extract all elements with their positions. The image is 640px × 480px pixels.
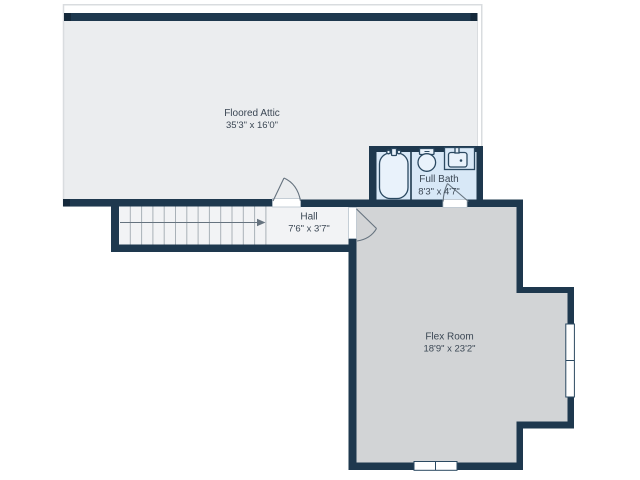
- sink-icon: [445, 148, 475, 170]
- sink-faucet: [455, 148, 459, 154]
- stairwell-left-wall: [111, 199, 119, 252]
- full-bath-label: Full Bath: [419, 174, 458, 185]
- bathtub-icon: [380, 149, 409, 199]
- attic-bottom-wall: [63, 199, 273, 207]
- hall-dims: 7'6" x 3'7": [288, 224, 330, 235]
- bathtub-basin: [380, 153, 409, 199]
- hall-label: Hall: [300, 212, 317, 223]
- floored-attic-dims: 35'3" x 16'0": [226, 120, 278, 131]
- sink-basin: [449, 153, 468, 168]
- flex-room-label: Flex Room: [425, 332, 473, 343]
- floor-plan-canvas: Floored Attic 35'3" x 16'0" Full Bath 8'…: [0, 0, 640, 480]
- floored-attic-label: Floored Attic: [224, 108, 280, 119]
- hall-bottom-wall: [111, 245, 357, 253]
- window-icon: [414, 462, 457, 471]
- toilet-bowl: [418, 154, 436, 172]
- window-icon: [566, 324, 575, 397]
- full-bath-dims: 8'3" x 4'7": [418, 187, 460, 198]
- flex-right-lower-wall: [517, 422, 524, 471]
- toilet-icon: [418, 149, 436, 172]
- bath-left-wall: [369, 146, 377, 202]
- sink-drain: [460, 159, 463, 162]
- flex-left-wall: [349, 239, 357, 471]
- door-threshold: [273, 199, 301, 208]
- flex-bottom-wall: [349, 463, 415, 471]
- flex-bottom-wall: [457, 463, 523, 471]
- flex-room-dims: 18'9" x 23'2": [423, 344, 475, 355]
- bathtub-faucet: [392, 149, 397, 156]
- bathtub-tap: [387, 150, 391, 154]
- bath-right-wall: [477, 146, 484, 207]
- bathtub-tap: [397, 150, 401, 154]
- wall-end-cap: [64, 13, 71, 21]
- bumpout-right-wall: [568, 397, 575, 429]
- wall-end-cap: [63, 199, 70, 207]
- floor-plan: Floored Attic 35'3" x 16'0" Full Bath 8'…: [0, 0, 640, 480]
- door-threshold: [443, 200, 467, 208]
- door-threshold: [349, 208, 357, 239]
- flex-right-upper-wall: [517, 200, 524, 294]
- middle-horizontal-wall: [467, 200, 523, 208]
- wall-end-cap: [471, 13, 478, 21]
- bumpout-top-wall: [517, 287, 575, 293]
- attic-top-wall: [64, 13, 478, 21]
- bumpout-bottom-wall: [517, 422, 575, 429]
